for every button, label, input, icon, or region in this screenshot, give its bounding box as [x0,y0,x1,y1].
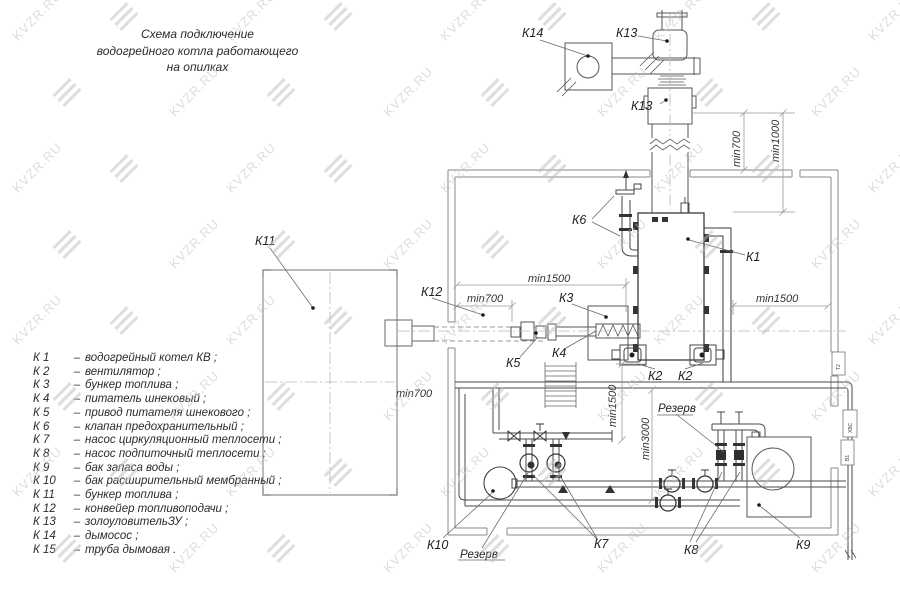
legend-item: К 7–насос циркуляционный теплосети ; [33,434,282,448]
legend-list: К 1–водогрейный котел КВ ; К 2–вентилято… [33,352,282,558]
dim-min1000: min1000 [770,119,782,162]
fan-k2-left [612,345,646,365]
room-walls [448,170,838,535]
safety-valve-k6 [616,170,641,256]
label-k2: К2 [678,369,692,383]
legend-item: К 14–дымосос ; [33,530,282,544]
sleeve-label: Т2 [836,364,842,370]
legend-item: К 13–золоуловительЗУ ; [33,516,282,530]
label-k1: К1 [746,250,760,264]
label-reserve: Резерв [658,403,696,415]
title-line-3: на опилках [95,59,300,76]
expansion-tank-k10 [484,467,517,499]
legend-item: К 4–питатель шнековый ; [33,393,282,407]
legend-item: К 3–бункер топлива ; [33,379,282,393]
label-reserve: Резерв [460,549,498,561]
water-tank-k9 [747,432,811,517]
label-k2: К2 [648,369,662,383]
dim-min1500: min1500 [607,384,619,427]
label-k12: К12 [421,285,442,299]
dim-min3000: min3000 [640,417,652,460]
legend-item: К 8–насос подпиточный теплосети ; [33,448,282,462]
legend-item: К 11–бункер топлива ; [33,489,282,503]
pump-group-k7 [508,424,570,478]
legend-item: К 9–бак запаса воды ; [33,462,282,476]
flue-break-symbol [648,138,692,152]
fuel-hopper-k3 [588,306,628,360]
dim-min700: min700 [467,293,504,305]
fan-k2-right [690,345,724,365]
dim-min700: min700 [396,388,433,400]
label-k9: К9 [796,538,810,552]
legend-item: К 12–конвейер топливоподачи ; [33,503,282,517]
label-k4: К4 [552,346,566,360]
smoke-exhauster-k14 [557,43,612,96]
title-line-2: водогрейного котла работающего [95,43,300,60]
title-line-1: Схема подключение [95,26,300,43]
legend-item: К 1–водогрейный котел КВ ; [33,352,282,366]
stairs [545,362,576,408]
drawing-title: Схема подключение водогрейного котла раб… [95,26,300,76]
label-k10: К10 [427,538,448,552]
boiler-k1 [633,197,733,382]
legend-item: К 6–клапан предохранительный ; [33,421,282,435]
sleeve-label: В1 [845,455,851,461]
chimney-k15 [657,10,687,30]
heat-pipes [455,382,856,560]
dim-min1500: min1500 [528,273,571,285]
drawing-sheet: Схема подключение водогрейного котла раб… [0,0,900,600]
sleeve-label: ХВС [848,422,854,433]
dim-min700: min700 [731,130,743,167]
label-k8: К8 [684,543,698,557]
legend-item: К 5–привод питателя шнекового ; [33,407,282,421]
label-k14: К14 [522,26,543,40]
pipe-valves [558,470,718,511]
label-k6: К6 [572,213,586,227]
legend-item: К 2–вентилятор ; [33,366,282,380]
label-k11: К11 [255,234,275,248]
label-k13: К13 [631,99,652,113]
pump-group-k8 [715,443,745,466]
label-k13: К13 [616,26,637,40]
label-k5: К5 [506,356,520,370]
label-k3: К3 [559,291,573,305]
legend-item: К 10–бак расширительный мембранный ; [33,475,282,489]
label-k7: К7 [594,537,609,551]
legend-item: К 15–труба дымовая . [33,544,282,558]
dim-min1500: min1500 [756,293,799,305]
